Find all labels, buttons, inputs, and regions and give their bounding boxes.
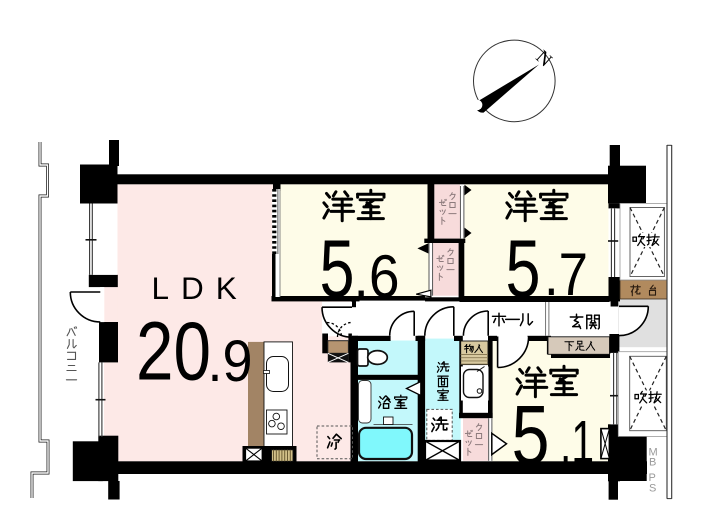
- svg-text:5: 5: [320, 224, 355, 315]
- svg-text:5: 5: [512, 388, 550, 482]
- svg-text:.9: .9: [208, 329, 253, 394]
- svg-text:20: 20: [136, 304, 211, 397]
- svg-text:.7: .7: [544, 241, 588, 308]
- svg-text:B: B: [649, 457, 656, 469]
- svg-text:LDK: LDK: [152, 270, 249, 306]
- svg-text:S: S: [649, 483, 656, 495]
- svg-text:.6: .6: [354, 243, 400, 310]
- svg-text:.1: .1: [560, 409, 594, 476]
- svg-text:5: 5: [506, 224, 541, 315]
